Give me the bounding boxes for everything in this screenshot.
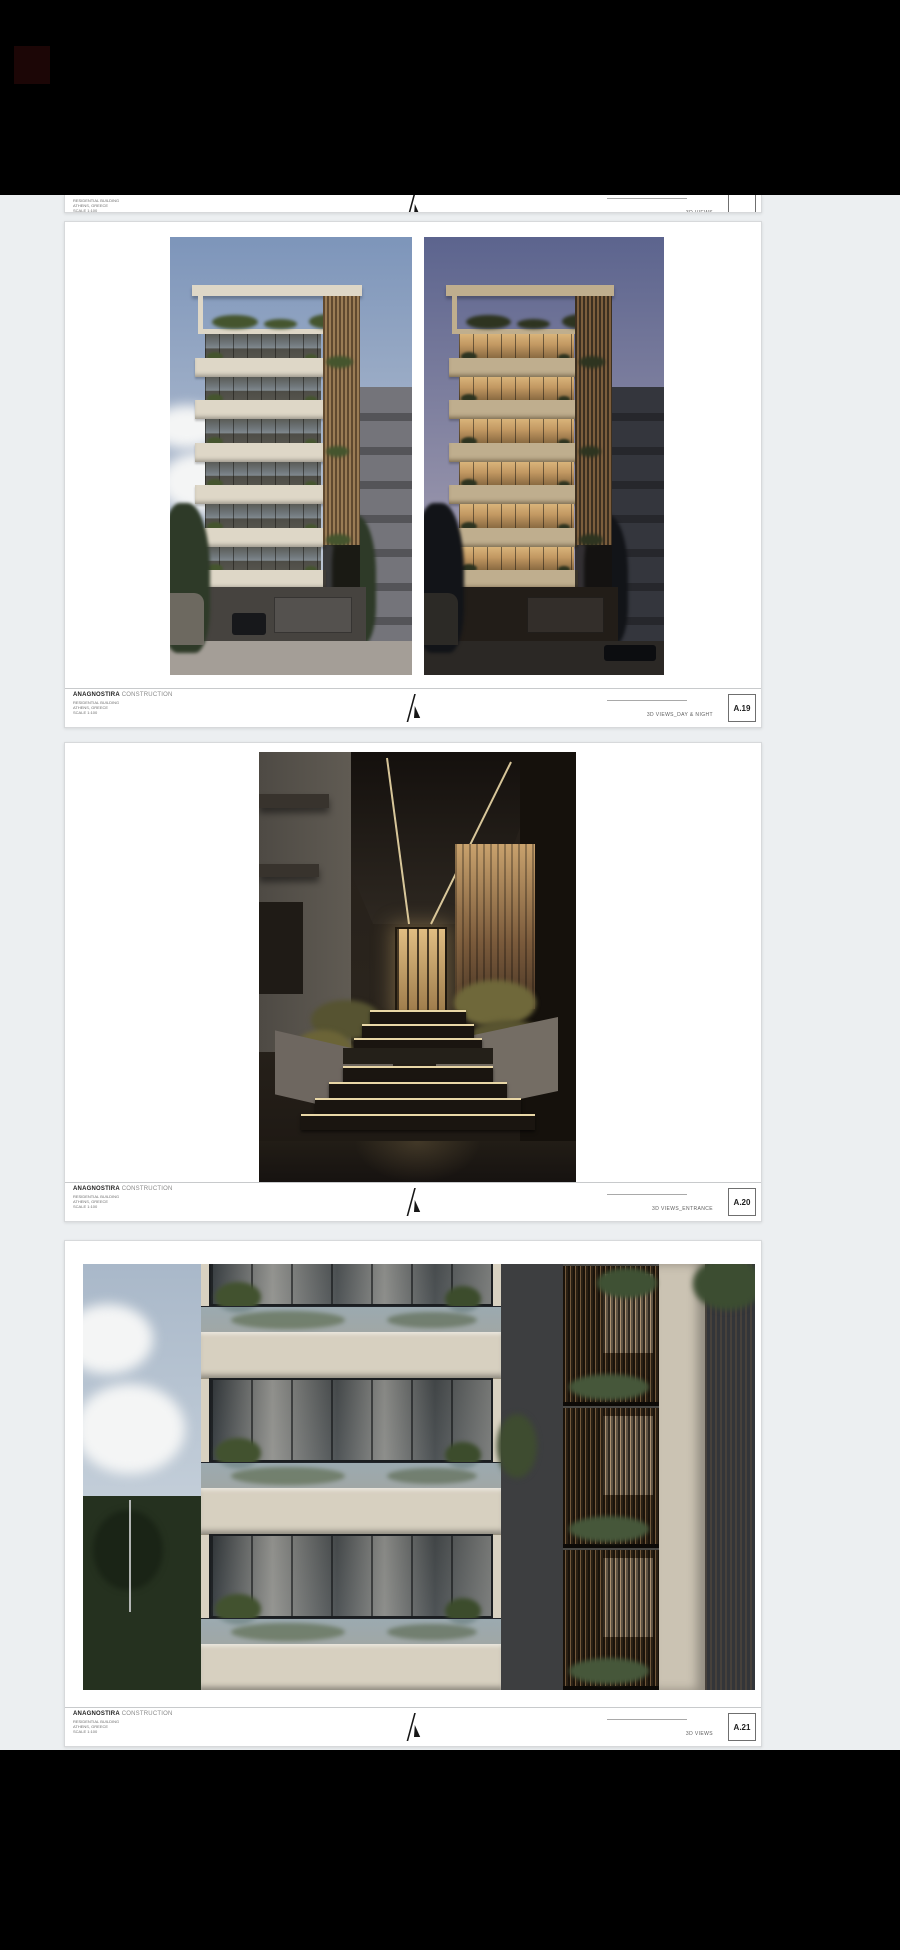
floor-module [201, 1378, 501, 1534]
sheet-title: 3D VIEWS [553, 1719, 713, 1740]
sheet-partial: ANAGNOSTIRA CONSTRUCTION RESIDENTIAL BUI… [64, 195, 762, 213]
entrance-door [395, 927, 447, 1019]
lower-steps [301, 1066, 535, 1130]
titleblock-details: RESIDENTIAL BUILDING ATHENS, GREECE SCAL… [73, 700, 172, 715]
titleblock-details: RESIDENTIAL BUILDING ATHENS, GREECE SCAL… [73, 1194, 172, 1209]
cloud [83, 1384, 185, 1474]
title-rule [607, 700, 687, 701]
wood-slat-tower [563, 1264, 659, 1690]
lambda-mark-logo-icon [405, 1188, 421, 1216]
sheet-title: 3D VIEWS [553, 198, 713, 213]
tree [83, 1496, 201, 1690]
page-number-box: A.20 [728, 1188, 756, 1216]
street [170, 641, 412, 675]
planter-wall [424, 593, 458, 645]
main-building [198, 285, 360, 675]
company-name: ANAGNOSTIRA CONSTRUCTION [73, 1711, 172, 1717]
car [232, 613, 266, 635]
page-number-box [728, 195, 756, 213]
page-number-box: A.19 [728, 694, 756, 722]
title-rule [607, 1194, 687, 1195]
sky-patch [83, 1264, 201, 1500]
balcony-stack [198, 334, 321, 589]
garage-level [192, 587, 366, 641]
lambda-mark-logo-icon [405, 694, 421, 722]
foreground-path [259, 1141, 576, 1183]
cloud [83, 1304, 153, 1374]
titleblock-left: ANAGNOSTIRA CONSTRUCTION RESIDENTIAL BUI… [73, 1711, 172, 1734]
wood-slat-screen [575, 296, 612, 545]
company-name: ANAGNOSTIRA CONSTRUCTION [73, 692, 172, 698]
sheet-a20: ANAGNOSTIRA CONSTRUCTION RESIDENTIAL BUI… [64, 742, 762, 1222]
climbing-plant [497, 1414, 537, 1478]
lambda-mark-logo-icon [405, 1713, 421, 1741]
car [604, 645, 656, 661]
document-viewer[interactable]: ANAGNOSTIRA CONSTRUCTION RESIDENTIAL BUI… [0, 195, 900, 1750]
page-number-box: A.21 [728, 1713, 756, 1741]
main-building [452, 285, 612, 675]
sheet-a19: ANAGNOSTIRA CONSTRUCTION RESIDENTIAL BUI… [64, 221, 762, 728]
dark-wall-strip [501, 1264, 563, 1690]
cream-facade [201, 1264, 501, 1690]
window-band [209, 1534, 493, 1618]
render-building-exterior-day [170, 237, 412, 675]
window-band [209, 1378, 493, 1462]
balcony-fascia [201, 1332, 501, 1379]
titleblock-left: ANAGNOSTIRA CONSTRUCTION RESIDENTIAL BUI… [73, 1186, 172, 1209]
sheet-title: 3D VIEWS_ENTRANCE [553, 1194, 713, 1215]
company-name: ANAGNOSTIRA CONSTRUCTION [73, 195, 172, 196]
glass-railing [201, 1306, 501, 1333]
sheet-a21: ANAGNOSTIRA CONSTRUCTION RESIDENTIAL BUI… [64, 1240, 762, 1747]
company-name: ANAGNOSTIRA CONSTRUCTION [73, 1186, 172, 1192]
upper-steps [354, 1010, 482, 1052]
right-dark-strip [705, 1264, 755, 1690]
planter-wall [170, 593, 204, 645]
glass-railing [201, 1462, 501, 1489]
titleblock-details: RESIDENTIAL BUILDING ATHENS, GREECE SCAL… [73, 198, 172, 213]
balcony-stack [452, 334, 574, 589]
render-facade-closeup [83, 1264, 755, 1690]
glass-railing [201, 1618, 501, 1645]
lambda-mark-logo-icon [405, 195, 421, 213]
titleblock-left: ANAGNOSTIRA CONSTRUCTION RESIDENTIAL BUI… [73, 195, 172, 213]
titleblock-left: ANAGNOSTIRA CONSTRUCTION RESIDENTIAL BUI… [73, 692, 172, 715]
cream-pier [659, 1264, 705, 1690]
screenshot-root: ANAGNOSTIRA CONSTRUCTION RESIDENTIAL BUI… [0, 0, 900, 1950]
garage-level [446, 587, 618, 641]
titleblock-bar: ANAGNOSTIRA CONSTRUCTION RESIDENTIAL BUI… [65, 688, 761, 727]
render-building-entrance-dusk [259, 752, 576, 1183]
title-rule [607, 1719, 687, 1720]
wood-slat-screen [323, 296, 360, 545]
window-band [209, 1264, 493, 1306]
titleblock-details: RESIDENTIAL BUILDING ATHENS, GREECE SCAL… [73, 1719, 172, 1734]
title-rule [607, 198, 687, 199]
lamp-post [129, 1500, 131, 1612]
floor-module [201, 1264, 501, 1378]
balcony-fascia [201, 1488, 501, 1535]
titleblock-bar: ANAGNOSTIRA CONSTRUCTION RESIDENTIAL BUI… [65, 195, 761, 213]
render-building-exterior-night [424, 237, 664, 675]
sheet-title: 3D VIEWS_DAY & NIGHT [553, 700, 713, 721]
titleblock-bar: ANAGNOSTIRA CONSTRUCTION RESIDENTIAL BUI… [65, 1707, 761, 1746]
floor-module [201, 1534, 501, 1690]
recording-marker [14, 46, 50, 84]
titleblock-bar: ANAGNOSTIRA CONSTRUCTION RESIDENTIAL BUI… [65, 1182, 761, 1221]
balcony-fascia [201, 1644, 501, 1690]
